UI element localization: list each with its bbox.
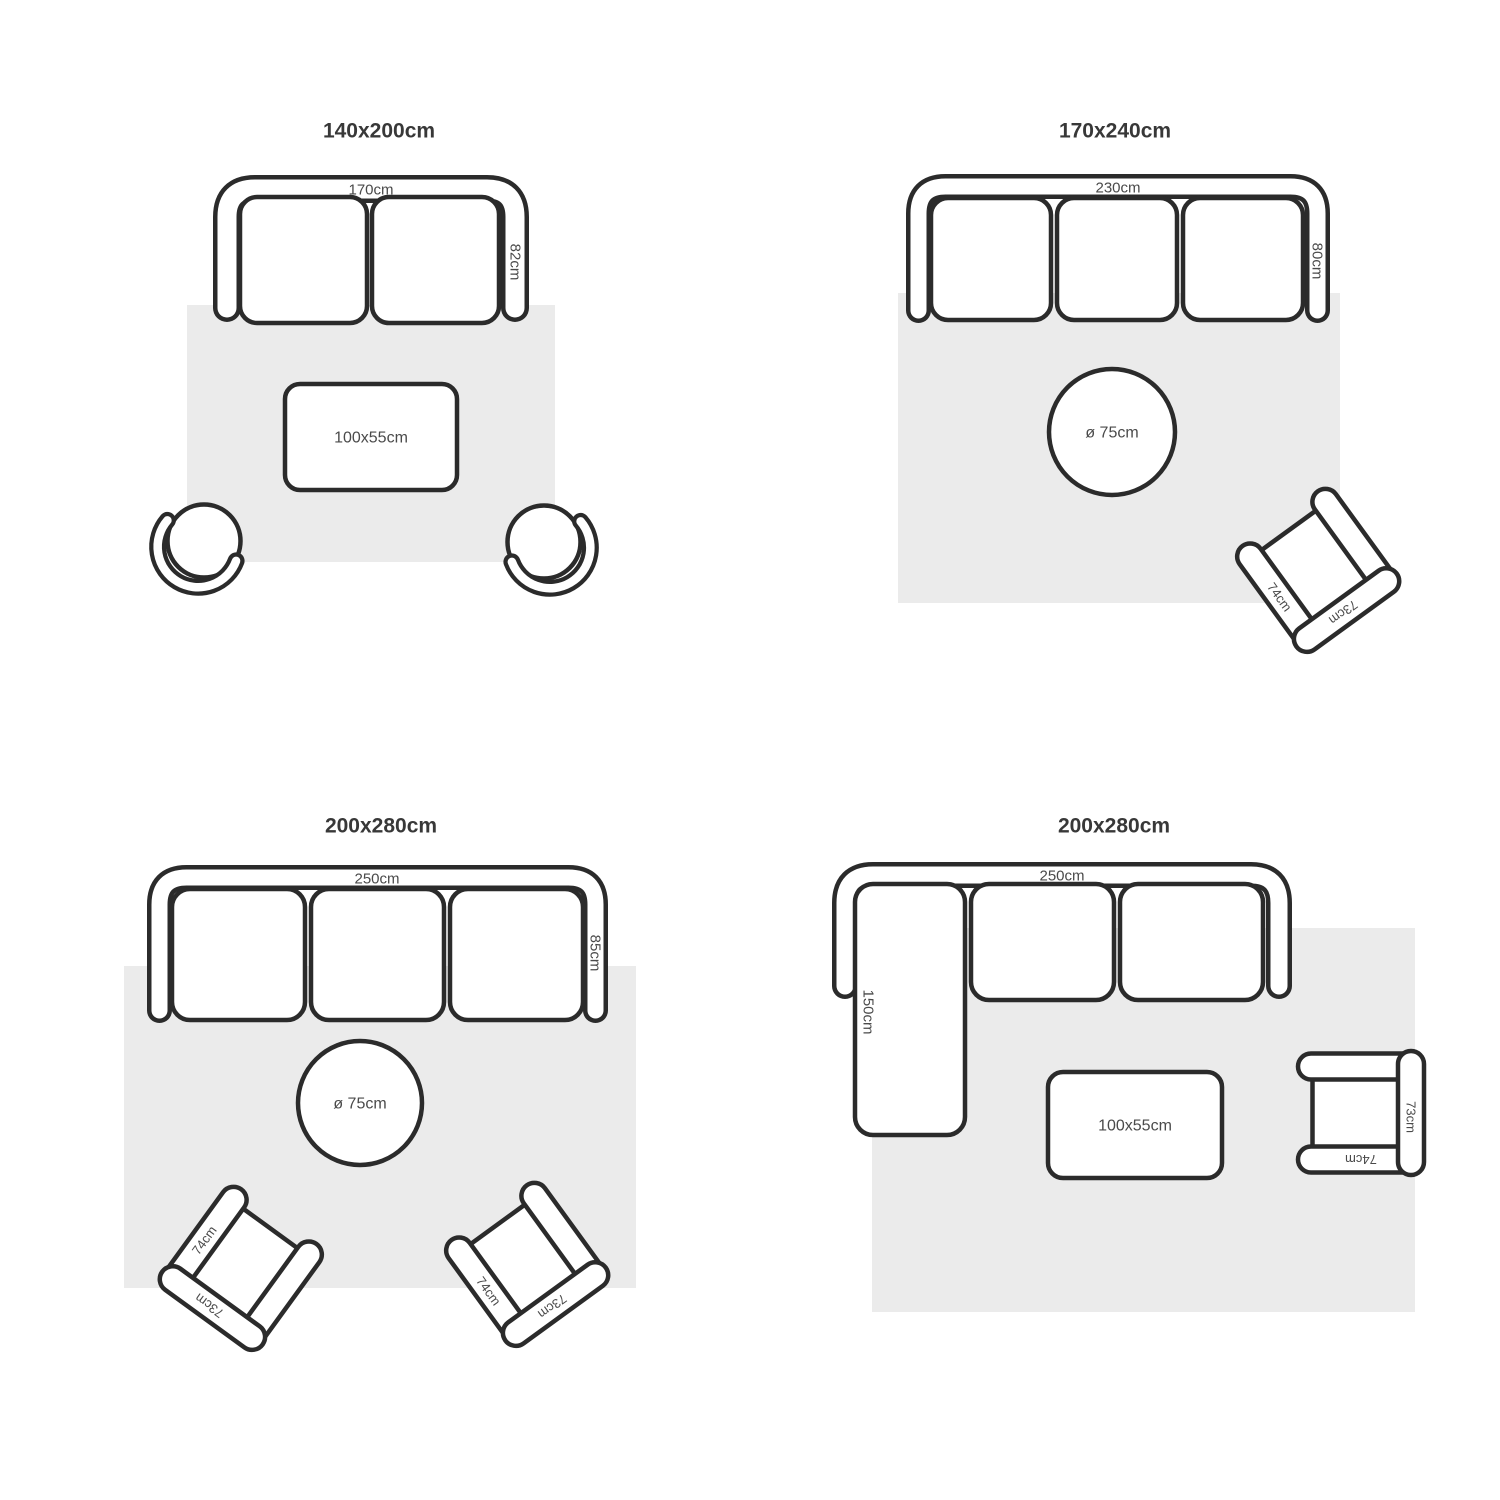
sofa-cushion [311,889,444,1020]
table-size-label: 100x55cm [1098,1118,1172,1135]
chaise-length-label: 150cm [860,989,877,1034]
armchair-back-label: 73cm [1404,1101,1419,1133]
rug-size-guide-diagram: 140x200cm 170cm 82cm 100x55cm 170x240cm [0,0,1500,1500]
layout-panel-1: 140x200cm 170cm 82cm 100x55cm [158,120,591,589]
layout-panel-4: 200x280cm 250cm 150cm 100x55cm 74cm 73cm [845,815,1424,1313]
sofa-depth-label: 80cm [1309,243,1326,280]
sofa-three-seat: 250cm 85cm [160,871,604,1021]
sofa-cushion [240,197,367,323]
sofa-cushion [1057,198,1177,320]
sofa-cushion [450,889,583,1020]
sofa-three-seat: 230cm 80cm [919,180,1326,321]
armchair: 74cm 73cm [1298,1051,1424,1175]
sofa-width-label: 170cm [348,182,393,199]
sofa-width-label: 230cm [1095,180,1140,197]
sofa-cushion [971,884,1114,1000]
layout-title: 200x280cm [325,815,437,838]
sofa-cushion [931,198,1051,320]
coffee-table: 100x55cm [1048,1072,1222,1178]
armchair-arm-label: 74cm [1345,1152,1377,1167]
layout-panel-2: 170x240cm 230cm 80cm ø 75cm 74cm 73cm [898,120,1404,658]
round-table: ø 75cm [1049,369,1175,495]
round-table: ø 75cm [298,1041,422,1165]
table-size-label: ø 75cm [333,1096,386,1113]
layout-title: 200x280cm [1058,815,1170,838]
sofa-width-label: 250cm [1039,868,1084,885]
layout-title: 170x240cm [1059,120,1171,143]
coffee-table: 100x55cm [285,384,457,490]
table-size-label: ø 75cm [1085,425,1138,442]
rug-size-guide: 140x200cm 170cm 82cm 100x55cm 170x240cm [0,0,1500,1500]
sofa-two-seat: 170cm 82cm [227,182,524,324]
sofa-depth-label: 85cm [587,935,604,972]
table-size-label: 100x55cm [334,430,408,447]
layout-title: 140x200cm [323,120,435,143]
round-chair-left [158,505,241,588]
sofa-cushion [372,197,499,323]
sofa-cushion [172,889,305,1020]
sofa-cushion [1120,884,1263,1000]
sofa-width-label: 250cm [354,871,399,888]
layout-panel-3: 200x280cm 250cm 85cm ø 75cm 74cm 73cm [124,815,636,1356]
sofa-cushion [1183,198,1303,320]
round-chair-right [508,506,591,589]
sofa-depth-label: 82cm [507,244,524,281]
